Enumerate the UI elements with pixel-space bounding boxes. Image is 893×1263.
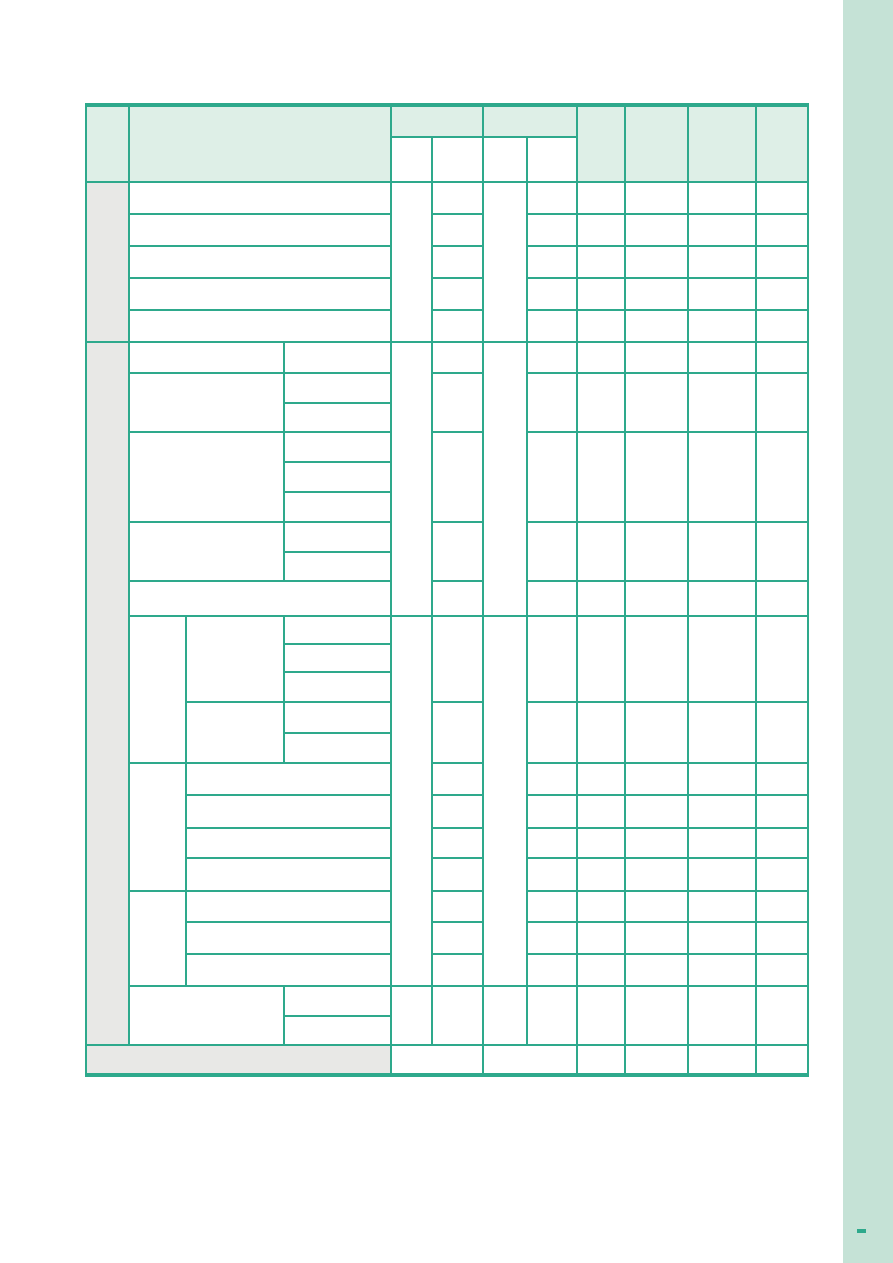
value-cell	[757, 279, 807, 309]
footer-label-cell	[87, 1046, 390, 1073]
value-cell	[433, 343, 482, 372]
value-cell	[433, 859, 482, 890]
value-cell	[689, 343, 755, 372]
value-cell	[757, 374, 807, 431]
value-cell	[689, 892, 755, 921]
value-cell	[433, 617, 482, 701]
value-cell	[689, 311, 755, 341]
row-label-cell	[130, 374, 283, 431]
value-cell	[528, 247, 576, 277]
column-group-header-cell	[392, 107, 482, 136]
header-cell	[130, 107, 390, 181]
footer-value-cell	[757, 1046, 807, 1073]
value-cell	[757, 247, 807, 277]
value-cell	[433, 279, 482, 309]
value-cell	[626, 703, 687, 762]
value-cell	[528, 523, 576, 580]
value-cell	[626, 955, 687, 985]
value-cell	[433, 796, 482, 827]
value-cell	[626, 829, 687, 857]
value-cell	[578, 433, 624, 521]
value-cell	[757, 829, 807, 857]
value-cell	[433, 955, 482, 985]
value-cell	[528, 343, 576, 372]
sub-row-label-cell	[285, 404, 390, 431]
value-cell	[689, 183, 755, 213]
row-label-cell	[130, 279, 390, 309]
value-cell	[689, 987, 755, 1044]
value-cell	[433, 703, 482, 762]
footer-value-cell	[484, 1046, 576, 1073]
value-cell	[578, 859, 624, 890]
value-cell	[757, 183, 807, 213]
value-cell	[433, 892, 482, 921]
value-cell	[626, 764, 687, 794]
value-cell	[626, 247, 687, 277]
value-cell	[757, 582, 807, 615]
sub-row-label-cell	[285, 617, 390, 643]
value-cell	[433, 582, 482, 615]
row-label-cell	[187, 859, 390, 890]
value-cell	[757, 523, 807, 580]
value-cell	[433, 523, 482, 580]
row-group-label-cell	[87, 343, 128, 1044]
value-cell	[757, 764, 807, 794]
row-label-cell	[187, 703, 283, 762]
footer-value-cell	[392, 1046, 482, 1073]
value-cell	[689, 523, 755, 580]
sub-row-label-cell	[285, 374, 390, 402]
value-cell	[392, 343, 431, 615]
value-cell	[626, 279, 687, 309]
value-cell	[626, 923, 687, 953]
value-cell	[578, 955, 624, 985]
document-page	[0, 0, 893, 1263]
row-label-cell	[187, 617, 283, 701]
row-label-cell	[130, 892, 185, 985]
value-cell	[578, 582, 624, 615]
value-cell	[578, 617, 624, 701]
value-cell	[433, 215, 482, 245]
value-cell	[484, 343, 526, 615]
value-cell	[757, 923, 807, 953]
row-label-cell	[130, 582, 390, 615]
value-cell	[626, 617, 687, 701]
value-cell	[528, 279, 576, 309]
value-cell	[578, 829, 624, 857]
value-cell	[626, 433, 687, 521]
value-cell	[689, 796, 755, 827]
value-cell	[578, 764, 624, 794]
header-cell	[626, 107, 687, 181]
value-cell	[757, 617, 807, 701]
value-cell	[528, 829, 576, 857]
value-cell	[689, 374, 755, 431]
value-cell	[528, 892, 576, 921]
value-cell	[757, 892, 807, 921]
value-cell	[757, 955, 807, 985]
value-cell	[578, 215, 624, 245]
sub-row-label-cell	[285, 463, 390, 491]
row-label-cell	[187, 892, 390, 921]
row-label-cell	[187, 796, 390, 827]
sub-row-label-cell	[285, 553, 390, 580]
sub-row-label-cell	[285, 493, 390, 521]
value-cell	[757, 859, 807, 890]
value-cell	[578, 796, 624, 827]
value-cell	[757, 433, 807, 521]
value-cell	[578, 703, 624, 762]
value-cell	[433, 829, 482, 857]
row-label-cell	[187, 955, 390, 985]
sub-column-header-cell	[528, 138, 576, 181]
value-cell	[626, 892, 687, 921]
row-group-label-cell	[87, 183, 128, 341]
sub-row-label-cell	[285, 433, 390, 461]
right-accent-band	[843, 0, 893, 1263]
value-cell	[689, 279, 755, 309]
value-cell	[392, 987, 431, 1044]
value-cell	[578, 247, 624, 277]
value-cell	[757, 343, 807, 372]
value-cell	[528, 374, 576, 431]
header-cell	[87, 107, 128, 181]
value-cell	[626, 987, 687, 1044]
value-cell	[626, 582, 687, 615]
value-cell	[484, 617, 526, 985]
value-cell	[578, 311, 624, 341]
value-cell	[433, 183, 482, 213]
value-cell	[433, 247, 482, 277]
value-cell	[689, 923, 755, 953]
value-cell	[626, 215, 687, 245]
value-cell	[528, 796, 576, 827]
value-cell	[392, 617, 431, 985]
row-label-cell	[130, 183, 390, 213]
row-label-cell	[187, 764, 390, 794]
value-cell	[433, 311, 482, 341]
value-cell	[433, 764, 482, 794]
value-cell	[626, 183, 687, 213]
value-cell	[757, 311, 807, 341]
value-cell	[689, 859, 755, 890]
value-cell	[626, 374, 687, 431]
value-cell	[392, 183, 431, 341]
value-cell	[626, 311, 687, 341]
value-cell	[433, 374, 482, 431]
value-cell	[433, 987, 482, 1044]
value-cell	[528, 183, 576, 213]
sub-row-label-cell	[285, 1017, 390, 1044]
value-cell	[757, 796, 807, 827]
sub-row-label-cell	[285, 703, 390, 732]
value-cell	[528, 764, 576, 794]
value-cell	[484, 987, 526, 1044]
value-cell	[578, 343, 624, 372]
value-cell	[433, 433, 482, 521]
footer-value-cell	[626, 1046, 687, 1073]
value-cell	[689, 764, 755, 794]
sub-column-header-cell	[484, 138, 526, 181]
header-cell	[578, 107, 624, 181]
value-cell	[528, 923, 576, 953]
value-cell	[528, 955, 576, 985]
sub-row-label-cell	[285, 734, 390, 762]
value-cell	[578, 892, 624, 921]
row-label-cell	[130, 987, 283, 1044]
footer-value-cell	[578, 1046, 624, 1073]
value-cell	[689, 247, 755, 277]
value-cell	[689, 703, 755, 762]
value-cell	[689, 582, 755, 615]
row-label-cell	[130, 215, 390, 245]
value-cell	[626, 796, 687, 827]
value-cell	[757, 215, 807, 245]
row-label-cell	[187, 923, 390, 953]
value-cell	[689, 617, 755, 701]
sub-column-header-cell	[392, 138, 431, 181]
header-cell	[689, 107, 755, 181]
row-label-cell	[130, 523, 283, 580]
value-cell	[528, 859, 576, 890]
value-cell	[689, 955, 755, 985]
value-cell	[757, 703, 807, 762]
row-label-cell	[187, 829, 390, 857]
row-label-cell	[130, 247, 390, 277]
page-marker-dash	[857, 1229, 866, 1233]
value-cell	[578, 987, 624, 1044]
value-cell	[528, 311, 576, 341]
header-cell	[757, 107, 807, 181]
value-cell	[626, 859, 687, 890]
value-cell	[528, 433, 576, 521]
value-cell	[689, 215, 755, 245]
value-cell	[578, 523, 624, 580]
value-cell	[433, 923, 482, 953]
value-cell	[689, 433, 755, 521]
value-cell	[578, 923, 624, 953]
value-cell	[484, 183, 526, 341]
sub-column-header-cell	[433, 138, 482, 181]
value-cell	[528, 215, 576, 245]
row-label-cell	[130, 343, 283, 372]
value-cell	[528, 987, 576, 1044]
value-cell	[578, 374, 624, 431]
column-group-header-cell	[484, 107, 576, 136]
sub-row-label-cell	[285, 343, 390, 372]
value-cell	[626, 343, 687, 372]
sub-row-label-cell	[285, 523, 390, 551]
blank-spec-table	[85, 103, 809, 1077]
value-cell	[528, 703, 576, 762]
sub-row-label-cell	[285, 987, 390, 1015]
row-label-cell	[130, 617, 185, 762]
value-cell	[689, 829, 755, 857]
value-cell	[578, 183, 624, 213]
footer-value-cell	[689, 1046, 755, 1073]
sub-row-label-cell	[285, 673, 390, 701]
row-label-cell	[130, 433, 283, 521]
value-cell	[578, 279, 624, 309]
row-label-cell	[130, 311, 390, 341]
row-label-cell	[130, 764, 185, 890]
value-cell	[528, 617, 576, 701]
value-cell	[626, 523, 687, 580]
sub-row-label-cell	[285, 645, 390, 671]
value-cell	[757, 987, 807, 1044]
value-cell	[528, 582, 576, 615]
